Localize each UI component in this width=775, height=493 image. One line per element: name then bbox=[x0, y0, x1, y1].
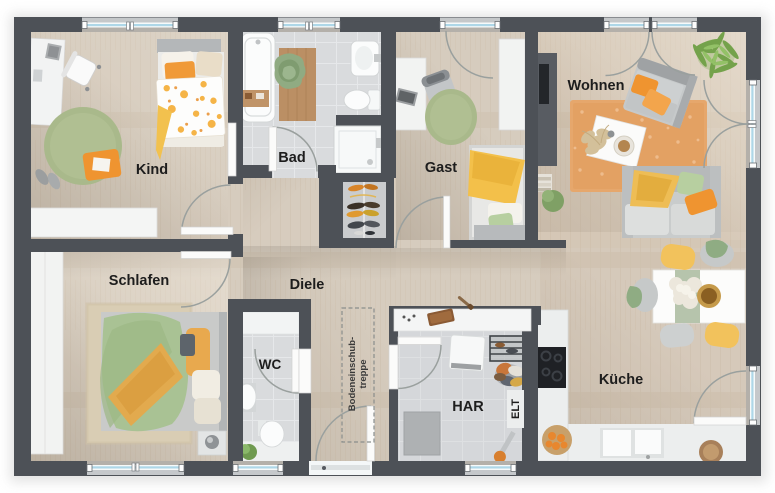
svg-text:WC: WC bbox=[259, 357, 282, 372]
svg-text:Schlafen: Schlafen bbox=[109, 273, 169, 289]
svg-text:Kind: Kind bbox=[136, 162, 168, 178]
svg-text:HAR: HAR bbox=[452, 399, 484, 415]
svg-text:Diele: Diele bbox=[290, 277, 325, 293]
svg-text:Wohnen: Wohnen bbox=[568, 78, 625, 94]
svg-text:Bodeneinschub-: Bodeneinschub- bbox=[347, 337, 358, 411]
svg-text:Gast: Gast bbox=[425, 160, 457, 176]
svg-text:Küche: Küche bbox=[599, 372, 643, 388]
svg-text:treppe: treppe bbox=[358, 359, 369, 388]
svg-text:ELT: ELT bbox=[510, 399, 522, 419]
svg-text:Bad: Bad bbox=[278, 150, 305, 166]
